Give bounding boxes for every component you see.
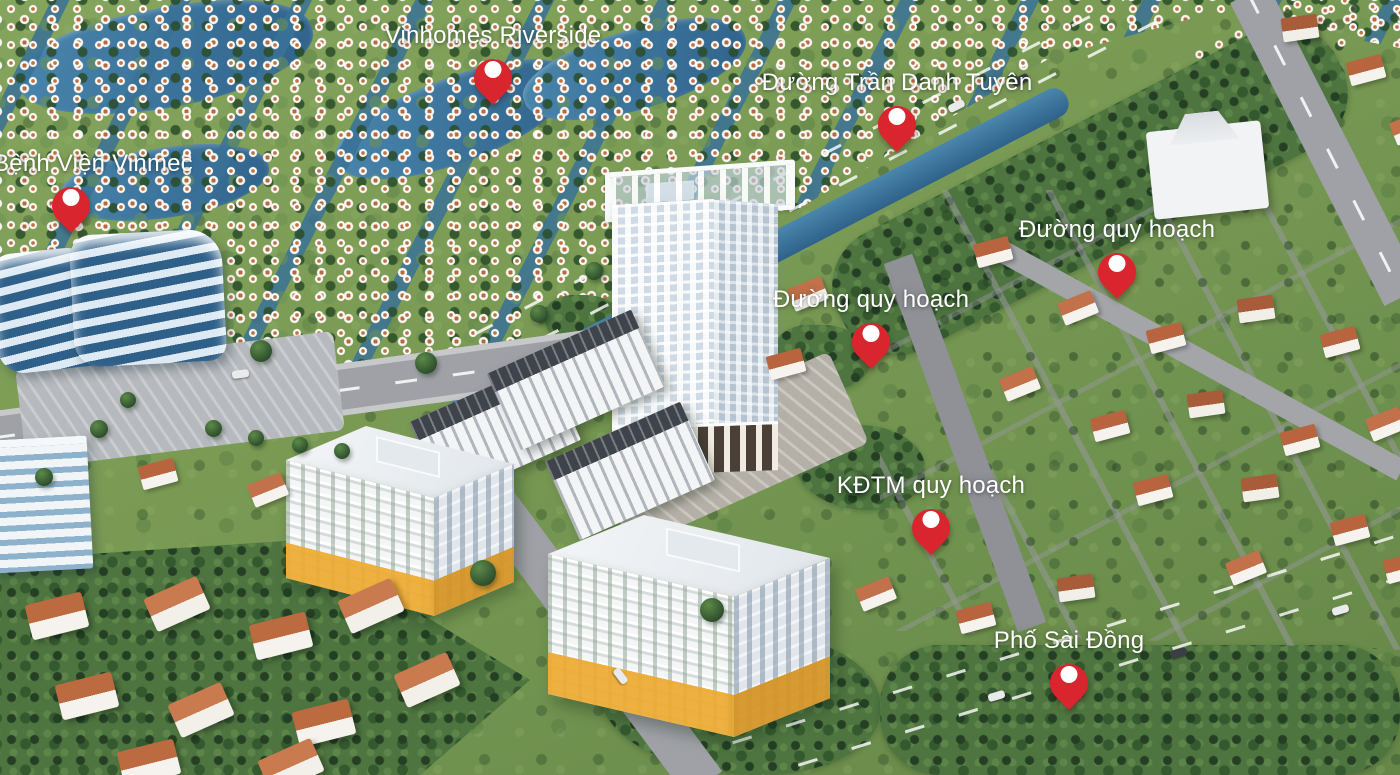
tower-side-facade: [714, 200, 778, 430]
masterplan-aerial-render: Vinhomes Riverside Đường Trần Danh Tuyên…: [0, 0, 1400, 775]
location-pin-icon: [1042, 656, 1096, 710]
tree: [415, 352, 437, 374]
house: [1237, 295, 1276, 324]
pin-label: Đường quy hoạch: [773, 287, 969, 313]
tree: [334, 443, 350, 459]
tree: [585, 262, 603, 280]
tree: [470, 560, 496, 586]
pin-label: KĐTM quy hoạch: [837, 473, 1025, 499]
pin-hole: [59, 186, 83, 210]
location-pin-icon: [44, 179, 98, 233]
pin-label: Đường Trần Danh Tuyên: [762, 70, 1033, 96]
pin-label: Phố Sài Đồng: [994, 628, 1145, 654]
midrise-building-2: [548, 492, 830, 732]
map-pin-pho-sai-dong: Phố Sài Đồng: [1049, 664, 1089, 718]
pin-hole: [885, 105, 909, 129]
tree: [90, 420, 108, 438]
tree: [250, 340, 272, 362]
map-pin-duong-quy-hoach-east: Đường quy hoạch: [1097, 253, 1137, 307]
map-pin-benh-vien-vinmec: Bệnh Viện Vinmec: [51, 187, 91, 241]
location-pin-icon: [904, 501, 958, 555]
house: [1187, 390, 1226, 419]
pin-label: Vinhomes Riverside: [385, 23, 602, 49]
tree: [530, 305, 548, 323]
pin-label: Bệnh Viện Vinmec: [0, 151, 193, 177]
tree: [205, 420, 222, 437]
location-pin-icon: [1090, 245, 1144, 299]
house: [247, 472, 289, 508]
vinmec-hospital-building: [0, 232, 234, 382]
pin-hole: [1105, 252, 1129, 276]
location-pin-icon: [870, 98, 924, 152]
map-pin-duong-tran-danh-tuyen: Đường Trần Danh Tuyên: [877, 106, 917, 160]
pin-hole: [919, 508, 943, 532]
hospital-wing: [69, 228, 228, 368]
house: [1346, 54, 1387, 86]
tree: [292, 437, 308, 453]
map-pin-vinhomes-riverside: Vinhomes Riverside: [473, 59, 513, 113]
midrise-building-1: [286, 406, 514, 624]
house: [1057, 574, 1096, 603]
house: [1389, 110, 1400, 146]
location-pin-icon: [466, 51, 520, 105]
map-pin-kdtm-quy-hoach: KĐTM quy hoạch: [911, 509, 951, 563]
tree: [120, 392, 136, 408]
house: [1281, 14, 1320, 43]
tree: [35, 468, 53, 486]
clubhouse-building: [1146, 120, 1270, 220]
house: [138, 458, 179, 490]
tree: [248, 430, 264, 446]
house: [1241, 474, 1280, 503]
map-pin-duong-quy-hoach-center: Đường quy hoạch: [851, 323, 891, 377]
pin-hole: [859, 322, 883, 346]
pin-hole: [1057, 663, 1081, 687]
tree: [700, 598, 724, 622]
office-building: [0, 435, 93, 573]
pin-label: Đường quy hoạch: [1019, 217, 1215, 243]
location-pin-icon: [844, 315, 898, 369]
pin-hole: [481, 58, 505, 82]
